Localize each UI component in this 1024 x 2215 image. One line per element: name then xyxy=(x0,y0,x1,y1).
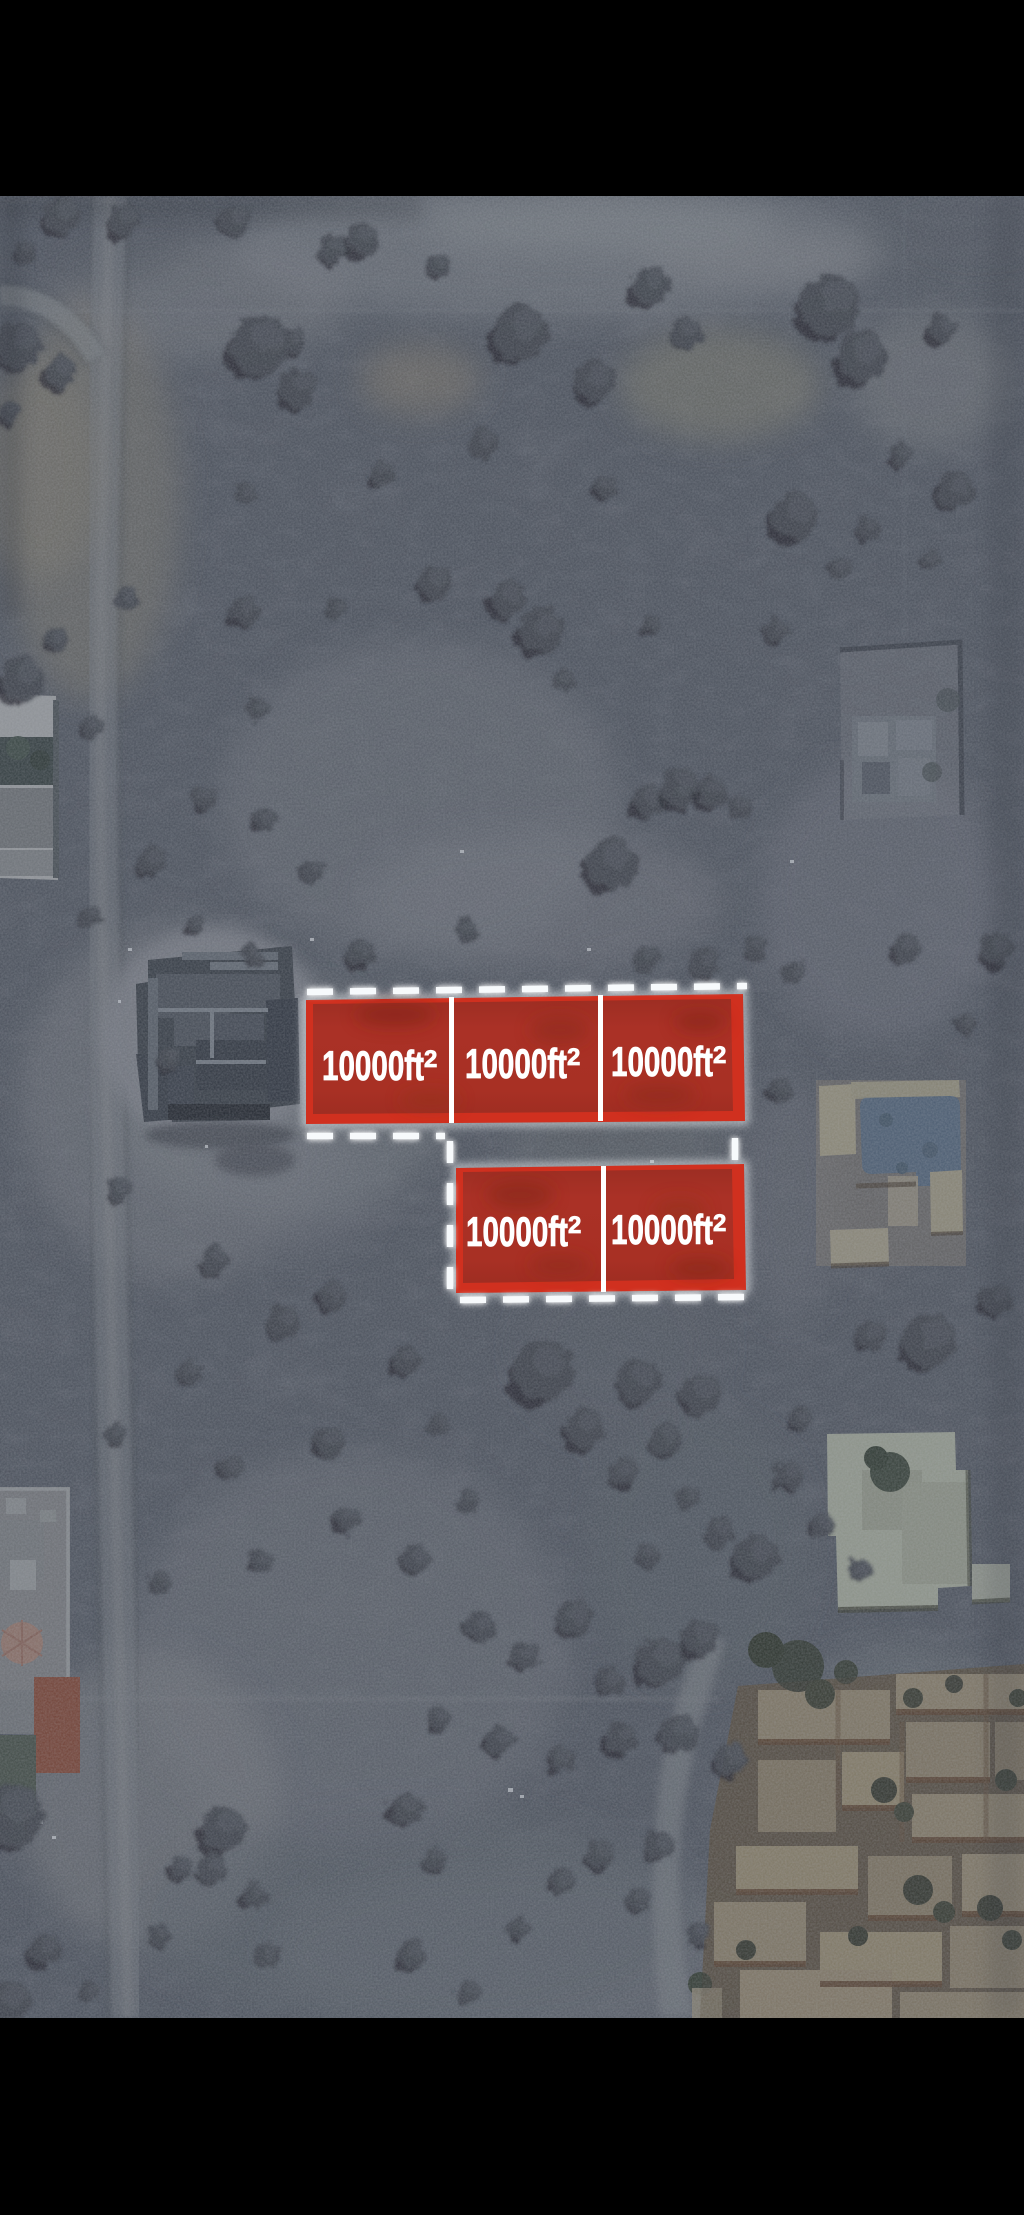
svg-text:10000ft2: 10000ft2 xyxy=(465,1040,580,1087)
svg-text:10000ft2: 10000ft2 xyxy=(611,1038,726,1085)
svg-text:10000ft2: 10000ft2 xyxy=(466,1208,581,1255)
svg-text:10000ft2: 10000ft2 xyxy=(611,1206,726,1253)
svg-text:10000ft2: 10000ft2 xyxy=(322,1042,437,1089)
